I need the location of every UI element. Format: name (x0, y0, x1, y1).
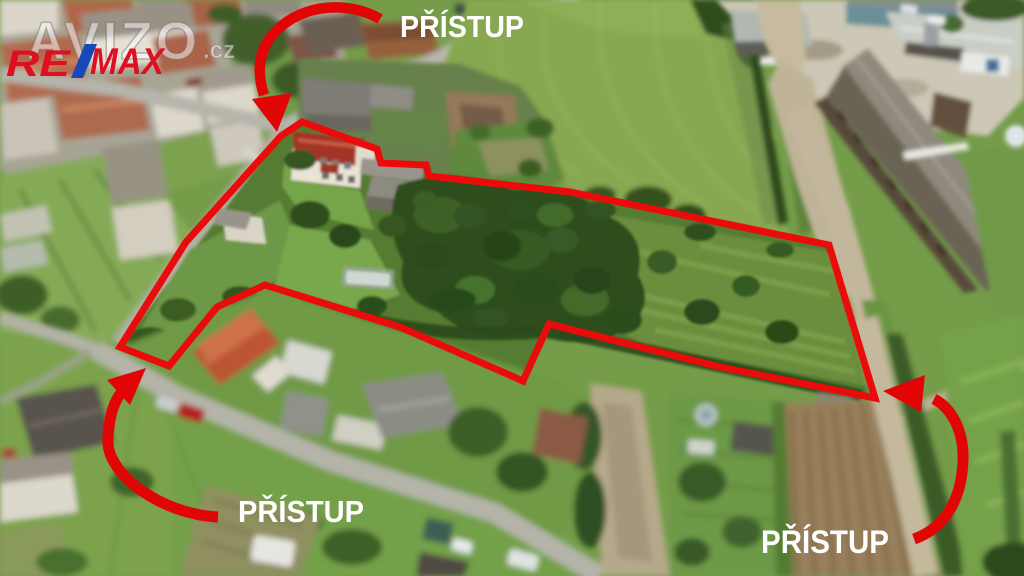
svg-text:MAX: MAX (90, 41, 166, 82)
svg-text:PŘÍSTUP: PŘÍSTUP (238, 493, 364, 529)
svg-text:RE: RE (6, 43, 72, 84)
svg-text:PŘÍSTUP: PŘÍSTUP (761, 524, 889, 560)
svg-text:PŘÍSTUP: PŘÍSTUP (400, 8, 524, 44)
svg-text:.cz: .cz (203, 37, 235, 64)
